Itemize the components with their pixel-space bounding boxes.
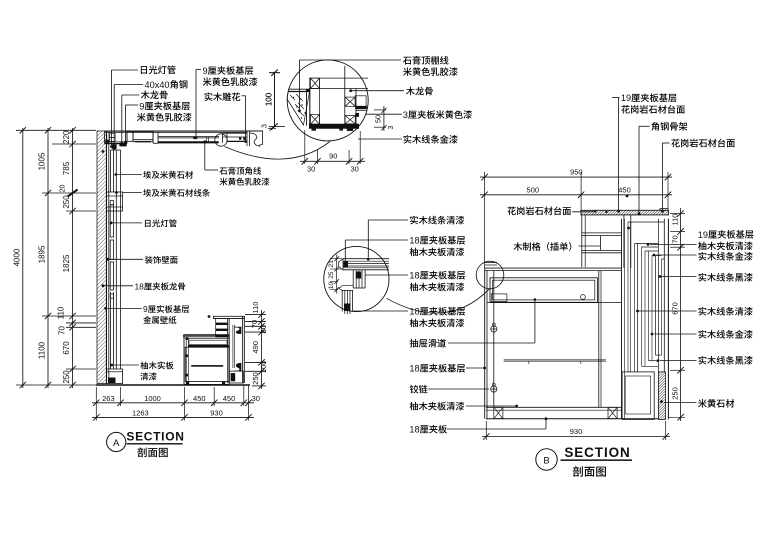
svg-text:263: 263	[102, 394, 115, 403]
svg-text:40x40: 40x40	[145, 80, 170, 90]
svg-text:785: 785	[62, 161, 71, 175]
svg-text:9: 9	[143, 304, 148, 314]
svg-text:70: 70	[670, 235, 679, 243]
svg-text:110: 110	[670, 214, 679, 226]
svg-text:1825: 1825	[62, 254, 71, 272]
svg-text:1100: 1100	[38, 341, 47, 359]
svg-text:3: 3	[403, 110, 408, 120]
svg-text:9: 9	[203, 66, 208, 76]
svg-text:1000: 1000	[144, 394, 161, 403]
svg-text:250: 250	[62, 370, 71, 384]
svg-text:220: 220	[62, 130, 71, 144]
svg-text:B: B	[543, 456, 549, 467]
svg-text:450: 450	[193, 394, 206, 403]
svg-text:3: 3	[262, 124, 269, 128]
svg-text:18: 18	[409, 364, 419, 374]
svg-text:670: 670	[62, 341, 71, 355]
svg-text:100: 100	[264, 92, 273, 106]
svg-text:30: 30	[351, 164, 359, 173]
svg-text:250: 250	[62, 195, 71, 209]
svg-text:90: 90	[329, 151, 337, 160]
svg-text:18: 18	[135, 282, 145, 292]
svg-text:30: 30	[307, 164, 315, 173]
svg-text:1005: 1005	[38, 152, 47, 170]
svg-text:21: 21	[328, 260, 335, 268]
svg-text:9: 9	[139, 101, 144, 111]
svg-text:19: 19	[621, 93, 631, 103]
svg-text:250: 250	[670, 387, 679, 400]
svg-text:18: 18	[409, 307, 419, 317]
svg-text:4000: 4000	[13, 248, 22, 266]
svg-text:500: 500	[527, 185, 540, 194]
svg-text:950: 950	[570, 168, 583, 177]
svg-text:1263: 1263	[132, 409, 149, 418]
svg-text:SECTION: SECTION	[564, 445, 630, 460]
svg-text:19: 19	[698, 230, 708, 240]
svg-text:110: 110	[251, 302, 260, 314]
svg-text:1895: 1895	[38, 245, 47, 263]
svg-text:18: 18	[409, 236, 419, 246]
svg-text:930: 930	[210, 409, 223, 418]
svg-text:490: 490	[251, 341, 260, 354]
svg-text:18: 18	[409, 271, 419, 281]
svg-text:25: 25	[328, 271, 335, 279]
svg-text:20: 20	[60, 185, 67, 193]
svg-text:18: 18	[409, 425, 419, 435]
svg-text:70: 70	[58, 326, 67, 335]
svg-text:SECTION: SECTION	[126, 430, 184, 444]
svg-text:250: 250	[251, 372, 260, 385]
svg-text:50: 50	[373, 115, 382, 123]
svg-text:30: 30	[252, 394, 260, 403]
svg-text:450: 450	[618, 185, 631, 194]
svg-text:10: 10	[328, 282, 335, 290]
svg-text:3: 3	[388, 126, 395, 130]
svg-text:110: 110	[57, 306, 66, 319]
svg-text:450: 450	[223, 394, 236, 403]
svg-text:A: A	[113, 438, 120, 449]
svg-text:670: 670	[670, 302, 679, 315]
svg-text:930: 930	[570, 427, 583, 436]
